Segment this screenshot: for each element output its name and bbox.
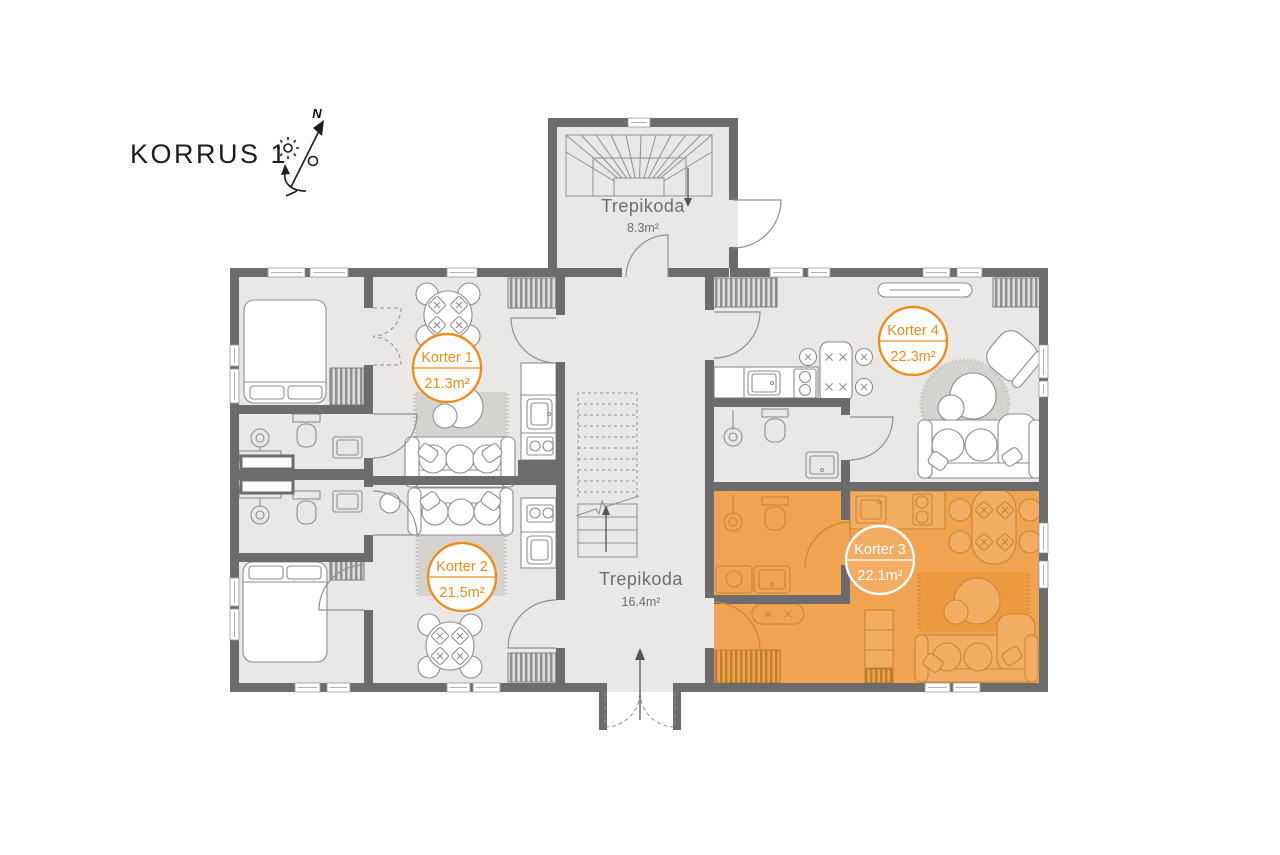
sofa [408,488,513,535]
floor-plan-page: KORRUS 1 N [0,0,1280,850]
floor-plan: KORRUS 1 N [0,0,1280,850]
page-title: KORRUS 1 [130,139,288,169]
staircase-top-area: 8.3m² [627,221,659,235]
dining-table [426,622,474,670]
apartment-badge-korter-1[interactable]: Korter 1 21.3m² [413,334,481,402]
wardrobe [712,278,777,307]
staircase-central-name: Trepikoda [599,569,683,589]
staircase-top-name: Trepikoda [601,196,685,216]
bed-top [244,300,326,403]
compass-north-label: N [312,106,322,121]
dining-table [424,291,472,339]
korter-4-area: 22.3m² [890,349,935,365]
apartment-badge-korter-3[interactable]: Korter 3 22.1m² [846,526,914,594]
korter-1-area: 21.3m² [424,376,469,392]
duct-box [241,456,293,469]
bed-bottom [243,562,327,662]
sofa [918,414,1043,478]
korter-3-name: Korter 3 [854,542,906,558]
door-stairwell-exterior [733,200,781,248]
staircase-central-area: 16.4m² [622,595,661,609]
korter-3-area: 22.1m² [857,568,902,584]
kitchen [850,491,945,529]
duct-box [241,480,293,493]
korter-4-name: Korter 4 [887,323,939,339]
shelf [865,610,893,684]
korter-1-name: Korter 1 [421,350,473,366]
apartment-badge-korter-2[interactable]: Korter 2 21.5m² [428,543,496,611]
wardrobe [508,278,563,308]
wardrobe [508,653,563,682]
side-table [380,493,400,513]
korter-2-area: 21.5m² [439,585,484,601]
wardrobe [330,368,364,405]
apartment-badge-korter-4[interactable]: Korter 4 22.3m² [879,307,947,375]
wardrobe [993,278,1042,307]
kitchenette [521,498,556,568]
wardrobe [714,650,780,683]
korter-2-name: Korter 2 [436,559,488,575]
kitchen [714,367,818,398]
kitchenette [521,363,556,460]
